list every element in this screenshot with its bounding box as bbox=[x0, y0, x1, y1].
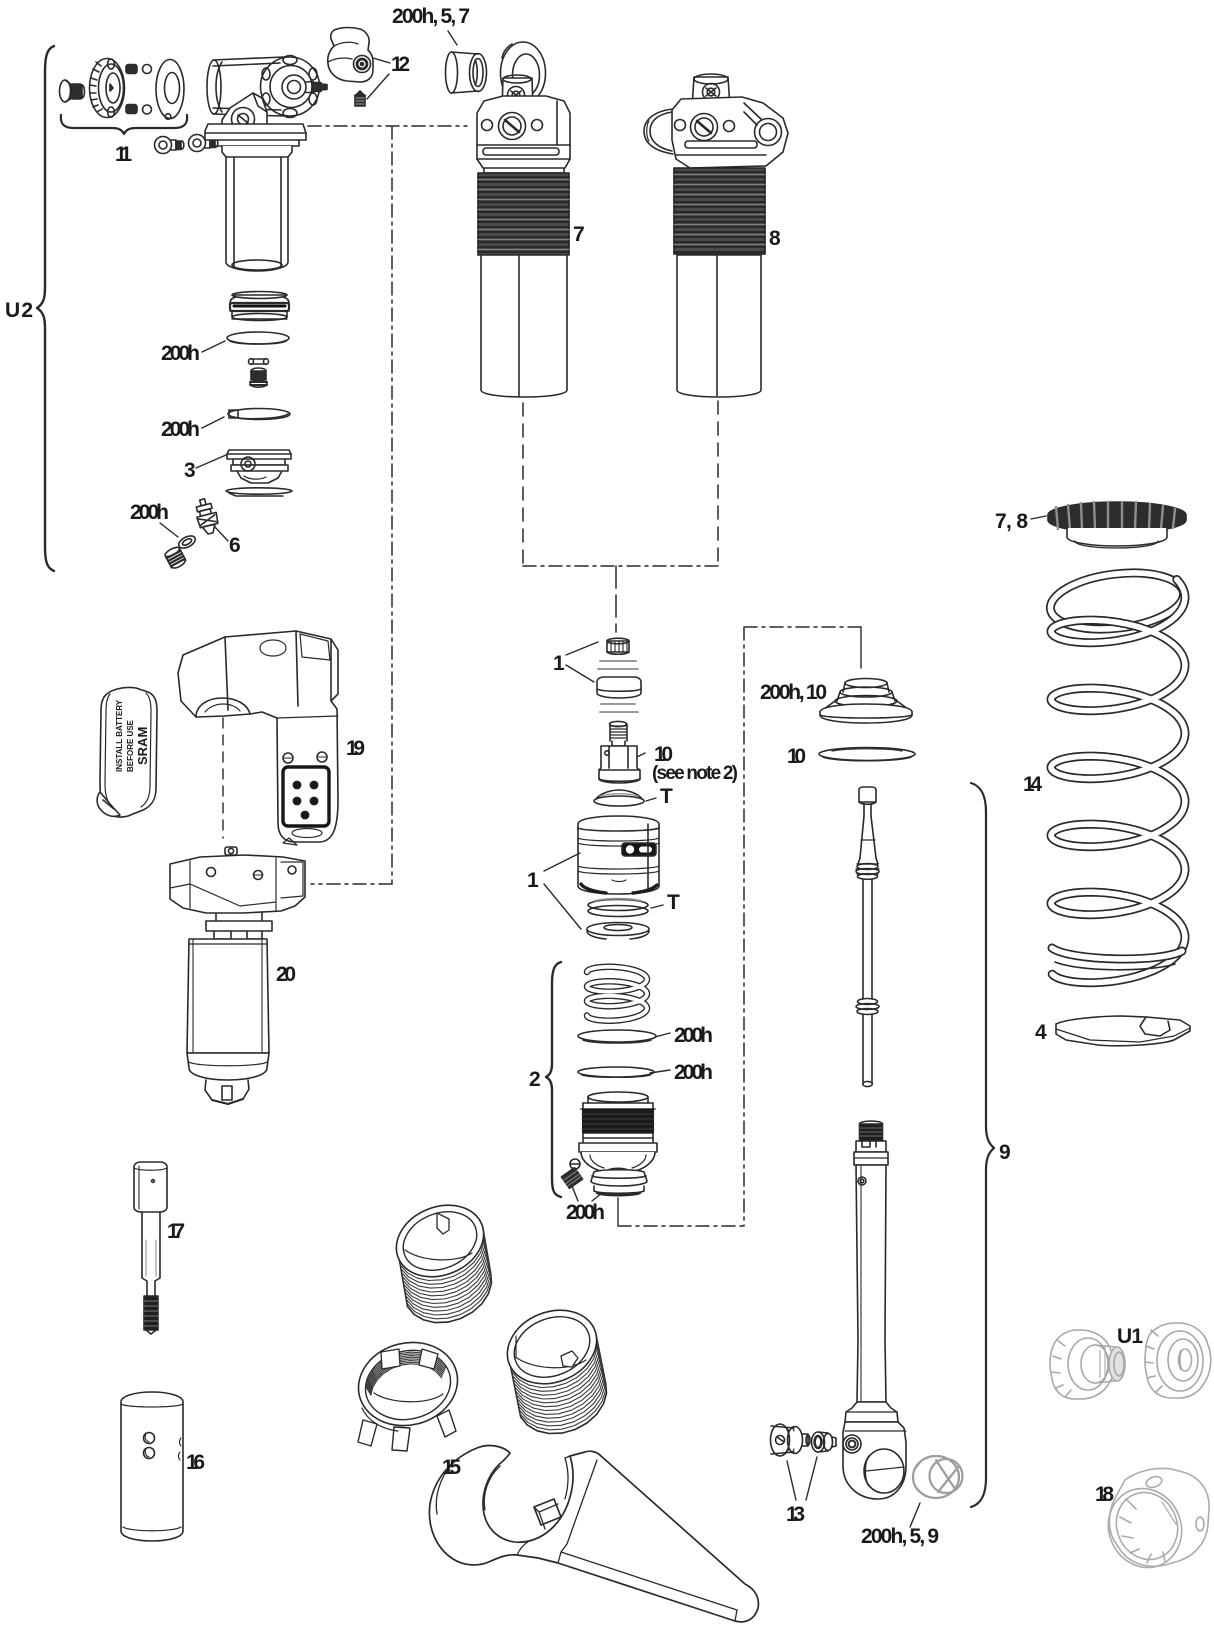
svg-text:200h, 10: 200h, 10 bbox=[760, 681, 827, 704]
svg-text:200h, 5, 7: 200h, 5, 7 bbox=[392, 5, 470, 28]
svg-text:3: 3 bbox=[184, 459, 196, 482]
svg-text:8: 8 bbox=[769, 227, 781, 250]
svg-text:13: 13 bbox=[786, 1503, 805, 1526]
svg-text:1: 1 bbox=[527, 869, 539, 892]
svg-text:10: 10 bbox=[787, 745, 806, 768]
svg-text:6: 6 bbox=[229, 534, 241, 557]
svg-text:18: 18 bbox=[1095, 1483, 1114, 1506]
svg-text:SRAM: SRAM bbox=[135, 727, 150, 765]
svg-text:(see note 2): (see note 2) bbox=[652, 763, 738, 784]
svg-text:14: 14 bbox=[1023, 773, 1042, 796]
svg-text:16: 16 bbox=[186, 1451, 205, 1474]
svg-text:9: 9 bbox=[999, 1141, 1011, 1164]
svg-text:BEFORE USE: BEFORE USE bbox=[126, 719, 135, 772]
svg-text:19: 19 bbox=[346, 737, 365, 760]
svg-text:T: T bbox=[667, 891, 680, 914]
svg-text:200h: 200h bbox=[130, 501, 169, 524]
svg-text:7: 7 bbox=[573, 223, 585, 246]
svg-text:U2: U2 bbox=[5, 299, 33, 322]
svg-text:20: 20 bbox=[276, 963, 296, 986]
svg-text:T: T bbox=[660, 785, 673, 808]
svg-text:U1: U1 bbox=[1117, 1325, 1143, 1348]
svg-text:7, 8: 7, 8 bbox=[995, 510, 1028, 533]
svg-text:200h: 200h bbox=[674, 1024, 713, 1047]
svg-text:200h: 200h bbox=[566, 1201, 605, 1224]
svg-text:INSTALL BATTERY: INSTALL BATTERY bbox=[115, 699, 124, 772]
svg-text:200h: 200h bbox=[161, 418, 200, 441]
svg-text:11: 11 bbox=[115, 143, 132, 166]
svg-text:200h, 5, 9: 200h, 5, 9 bbox=[861, 1525, 939, 1548]
svg-text:200h: 200h bbox=[674, 1061, 713, 1084]
svg-text:15: 15 bbox=[442, 1456, 461, 1479]
svg-text:17: 17 bbox=[167, 1220, 185, 1243]
svg-text:12: 12 bbox=[391, 53, 410, 76]
svg-text:4: 4 bbox=[1035, 1021, 1047, 1044]
svg-text:200h: 200h bbox=[161, 342, 200, 365]
svg-text:1: 1 bbox=[553, 652, 565, 675]
svg-text:2: 2 bbox=[529, 1068, 541, 1091]
